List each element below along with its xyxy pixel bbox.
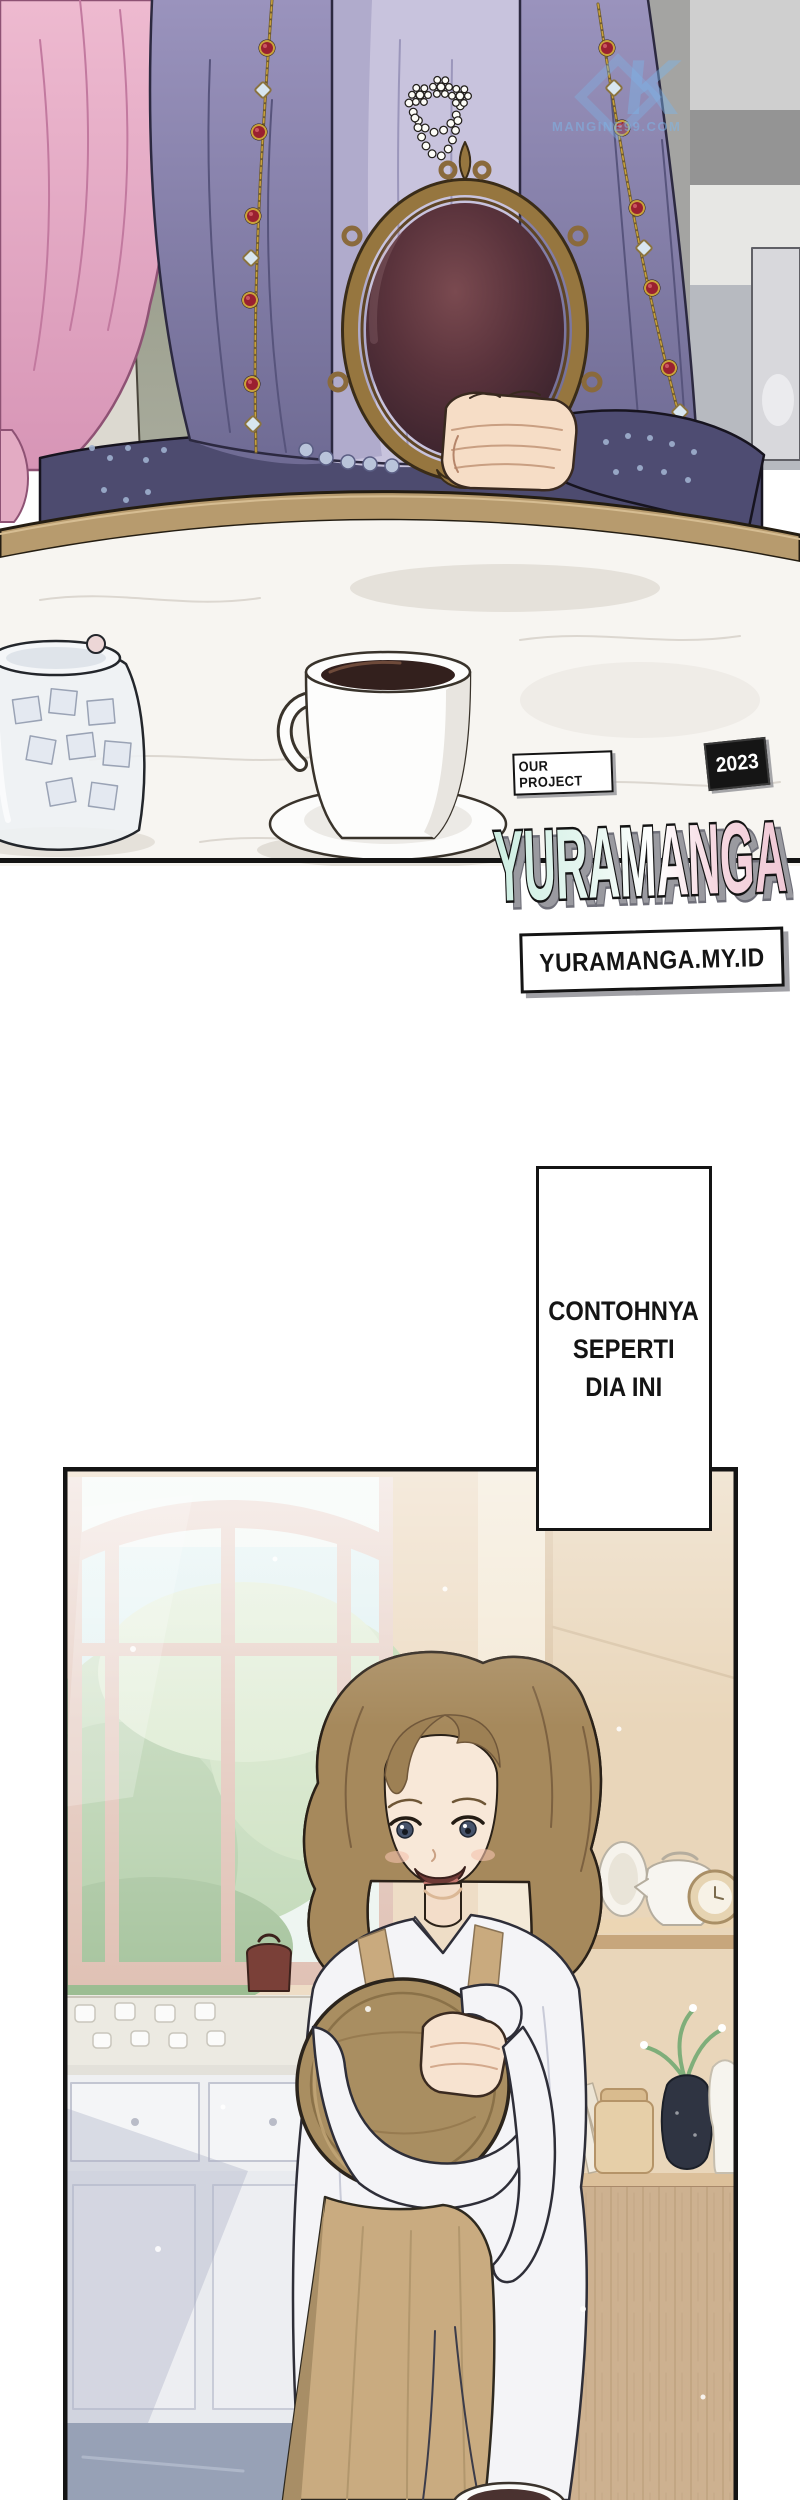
speech-bubble: CONTOHNYA SEPERTI DIA INI — [536, 1166, 712, 1531]
holding-fist — [442, 391, 576, 490]
watermark-site-text: MANGINE99.COM — [552, 119, 762, 134]
credit-logo-text: YURAMANGA — [492, 801, 788, 923]
speech-line: DIA INI — [586, 1368, 663, 1406]
chair-right — [752, 248, 800, 460]
hand — [421, 2013, 507, 2097]
coffee-surface — [321, 660, 455, 690]
decorative-plate — [599, 1842, 647, 1916]
speech-line: CONTOHNYA — [549, 1292, 700, 1330]
manga-page: K MANGINE99.COM OUR PROJECT 2023 YURAMAN… — [0, 0, 800, 2500]
shelf-clock — [689, 1871, 738, 1923]
credit-site-bar: YURAMANGA.MY.ID — [519, 927, 784, 994]
scanlation-credit: OUR PROJECT 2023 YURAMANGA YURAMANGA YUR… — [478, 738, 798, 998]
credit-logo: YURAMANGA YURAMANGA — [477, 773, 794, 944]
counter-canister — [595, 2089, 653, 2173]
woman — [283, 1652, 601, 2500]
speech-line: SEPERTI — [573, 1330, 675, 1368]
kitchen-scene-panel — [63, 1467, 738, 2500]
